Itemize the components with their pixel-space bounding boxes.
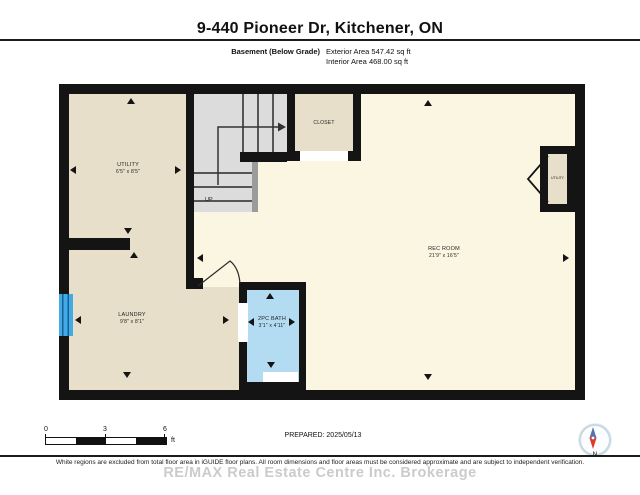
page-title: 9-440 Pioneer Dr, Kitchener, ON	[0, 20, 640, 38]
room-dims: 9'8" x 8'1"	[82, 319, 182, 326]
scale-segment	[136, 438, 166, 444]
exterior-area: Exterior Area 547.42 sq ft	[326, 47, 476, 56]
stair-direction-arrowhead	[278, 123, 286, 132]
scale-bar-segments	[45, 437, 167, 445]
floor-plan-page: 9-440 Pioneer Dr, Kitchener, ON Basement…	[0, 0, 640, 495]
stair-direction-line	[218, 127, 278, 185]
floor-plan: UTILITY 6'5" x 8'5" LAUNDRY 9'8" x 8'1" …	[59, 84, 585, 400]
compass-needle-north	[590, 427, 597, 438]
dimension-arrow	[266, 293, 274, 299]
dimension-arrow	[248, 318, 254, 326]
dimension-arrow	[130, 252, 138, 258]
scale-segment	[46, 438, 76, 444]
scale-label-6: 6	[163, 426, 167, 433]
dimension-arrow	[70, 166, 76, 174]
header-divider	[0, 39, 640, 41]
scale-label-0: 0	[44, 426, 48, 433]
stairs-up-label: UP	[205, 197, 229, 203]
room-label-utility-right: UTILITY	[539, 176, 576, 181]
prepared-date: PREPARED: 2025/05/13	[240, 432, 406, 439]
dimension-arrow	[424, 374, 432, 380]
room-name: UTILITY	[551, 176, 564, 180]
scale-unit: ft	[171, 437, 175, 444]
compass-needle-south	[590, 438, 597, 449]
dimension-arrow	[127, 98, 135, 104]
plan-annotations	[69, 94, 575, 390]
compass-pivot	[592, 437, 595, 440]
room-name: UTILITY	[117, 162, 139, 168]
dimension-arrow	[175, 166, 181, 174]
scale-segment	[106, 438, 136, 444]
room-label-utility: UTILITY 6'5" x 8'5"	[78, 162, 178, 176]
footer-divider	[0, 455, 640, 457]
room-name: 2PC BATH	[258, 316, 286, 322]
dimension-arrow	[267, 362, 275, 368]
room-label-laundry: LAUNDRY 9'8" x 8'1"	[82, 312, 182, 326]
room-label-rec-room: REC ROOM 21'9" x 16'5"	[394, 246, 494, 260]
dimension-arrow	[223, 316, 229, 324]
room-name: CLOSET	[313, 120, 334, 126]
dimension-arrow	[563, 254, 569, 262]
interior-area: Interior Area 468.00 sq ft	[326, 57, 476, 66]
dimension-arrow	[75, 316, 81, 324]
dimension-arrow	[289, 318, 295, 326]
disclaimer-text: White regions are excluded from total fl…	[0, 459, 640, 466]
room-label-closet: CLOSET	[295, 120, 353, 127]
dimension-arrow	[424, 100, 432, 106]
floor-label: Basement (Below Grade)	[120, 47, 320, 56]
compass-needle	[581, 426, 605, 450]
room-name: REC ROOM	[428, 246, 460, 252]
room-dims: 21'9" x 16'5"	[394, 253, 494, 260]
door-swing-arc	[198, 261, 240, 286]
room-name: LAUNDRY	[118, 312, 146, 318]
dimension-arrow	[123, 372, 131, 378]
dimension-arrow	[197, 254, 203, 262]
scale-segment	[76, 438, 106, 444]
scale-bar: 0 3 6 ft	[45, 426, 245, 448]
room-dims: 6'5" x 8'5"	[78, 169, 178, 176]
dimension-arrow	[124, 228, 132, 234]
scale-label-3: 3	[103, 426, 107, 433]
brokerage-watermark: RE/MAX Real Estate Centre Inc. Brokerage	[0, 465, 640, 481]
